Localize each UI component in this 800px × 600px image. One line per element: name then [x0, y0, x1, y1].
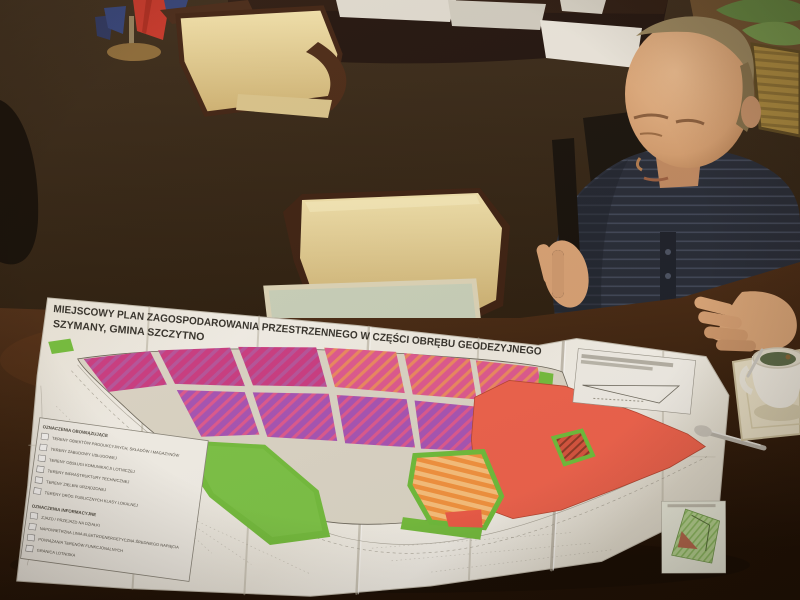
- inset-mini-map: [662, 501, 726, 573]
- flag-stand-base: [107, 43, 161, 61]
- finger: [716, 339, 756, 351]
- shirt-button: [665, 273, 671, 279]
- inset-scale-diagram: [573, 349, 696, 415]
- tea: [760, 352, 796, 366]
- scene-canvas: MIEJSCOWY PLAN ZAGOSPODAROWANIA PRZESTRZ…: [0, 0, 800, 600]
- teacup-and-saucer: [733, 348, 800, 440]
- shirt-button: [665, 249, 671, 255]
- chair-right: [752, 44, 800, 136]
- man-ear: [741, 96, 761, 128]
- tea-leaf: [786, 355, 791, 360]
- office-photo: MIEJSCOWY PLAN ZAGOSPODAROWANIA PRZESTRZ…: [0, 0, 800, 600]
- legend-box: OZNACZENIA OBOWIĄZUJĄCE TERENY OBIEKTÓW …: [21, 418, 209, 582]
